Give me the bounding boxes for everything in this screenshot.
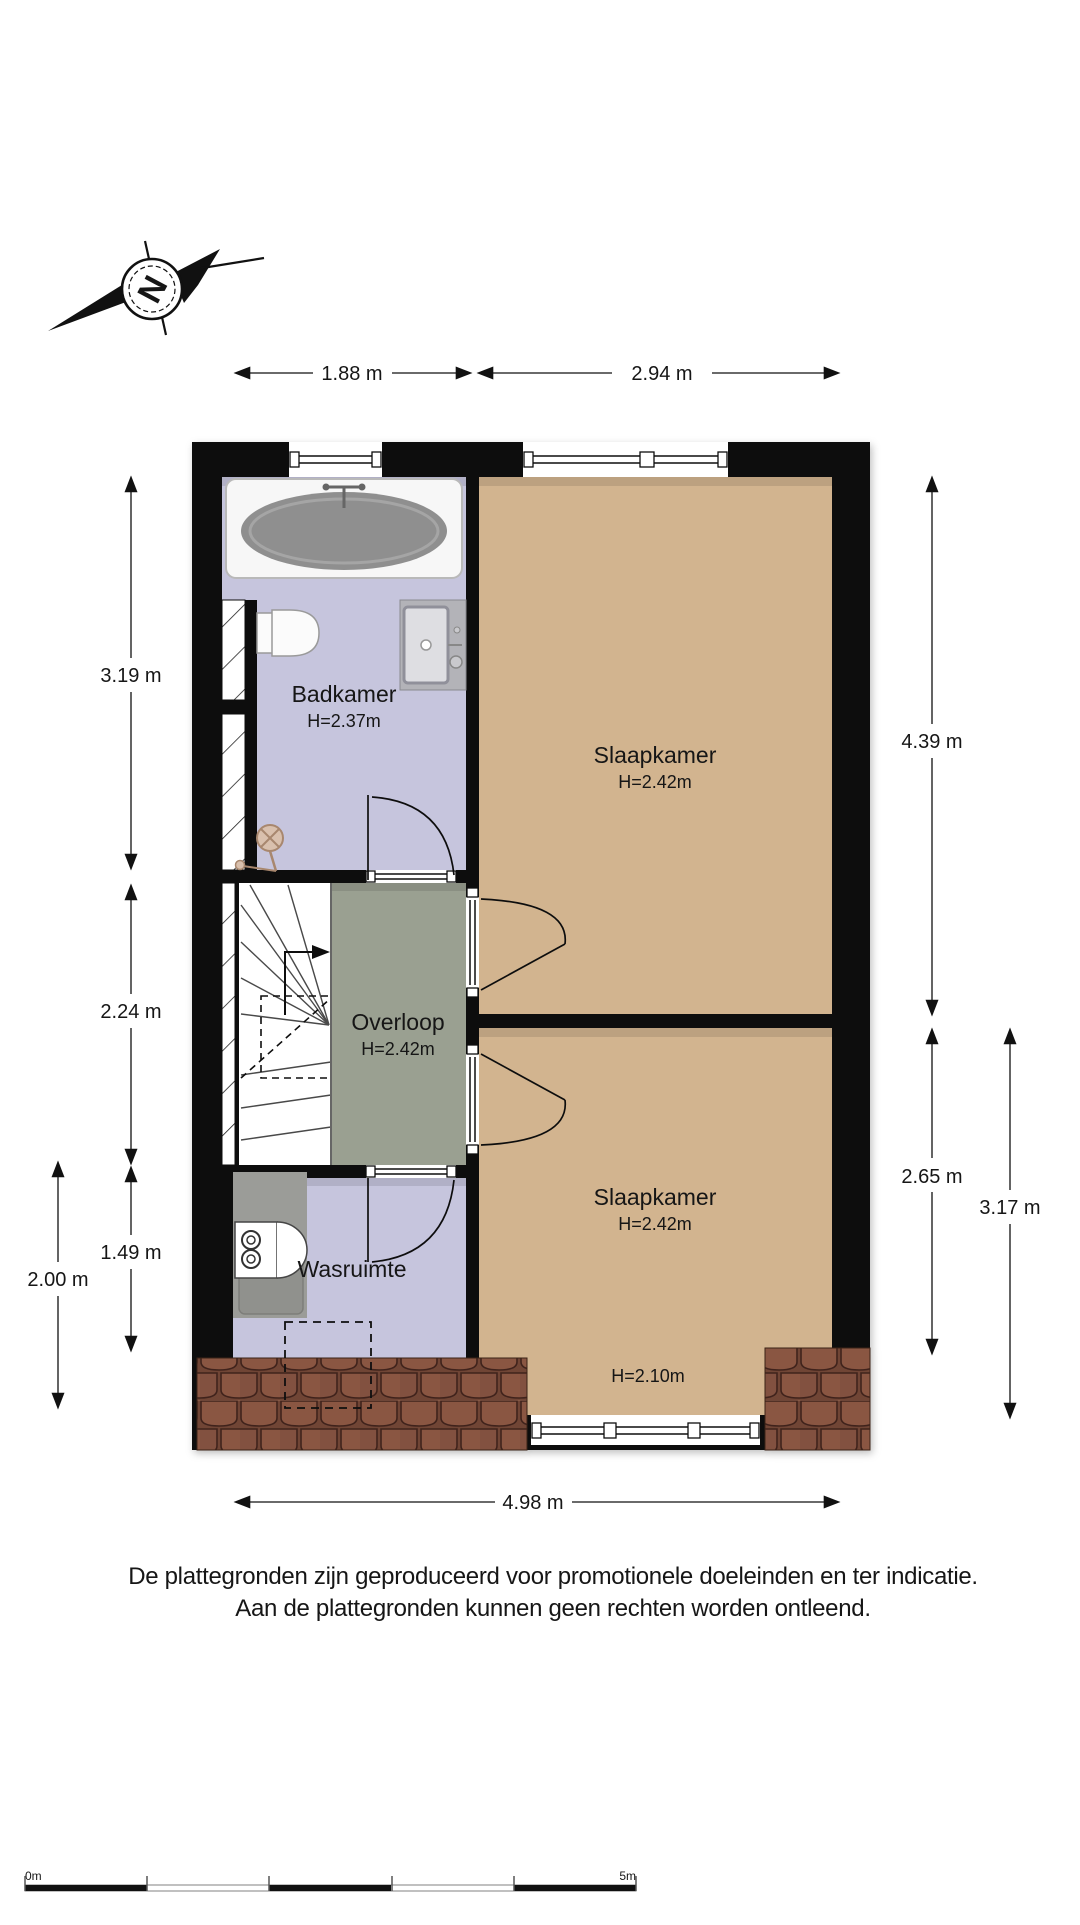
window-slaapkamer-onder [531,1415,760,1445]
room-overloop-label: Overloop [351,1009,444,1035]
window-badkamer [289,442,382,477]
room-slaapkamer-onder-height-low: H=2.10m [611,1366,685,1386]
svg-text:1.88 m: 1.88 m [321,363,382,385]
kneewall-inner-wall-lower [245,714,257,870]
kneewall-hatch-upper [222,600,245,700]
room-badkamer-label: Badkamer [292,681,397,707]
room-overloop-height: H=2.42m [361,1039,435,1059]
disclaimer-line-1: De plattegronden zijn geproduceerd voor … [128,1563,978,1590]
dimension-top-right: 2.94 m [479,363,838,385]
dimension-right-outer: 3.17 m [979,1030,1040,1417]
room-badkamer-height: H=2.37m [307,711,381,731]
svg-text:4.39 m: 4.39 m [901,731,962,753]
svg-text:2.94 m: 2.94 m [631,363,692,385]
scale-bar-end: 5m [619,1869,636,1883]
dimension-left-outer: 2.00 m [27,1163,88,1407]
room-slaapkamer-boven-height: H=2.42m [618,772,692,792]
boiler-icon [235,1222,307,1278]
dimension-bottom: 4.98 m [236,1492,838,1514]
scale-bar: 0m 5m [25,1869,636,1891]
scale-bar-start: 0m [25,1869,42,1883]
roof-left [197,1358,527,1450]
dimension-right-slaapkamer-onder: 2.65 m [901,1030,962,1353]
svg-text:2.65 m: 2.65 m [901,1166,962,1188]
dimension-top-left: 1.88 m [236,363,470,385]
svg-text:1.49 m: 1.49 m [100,1242,161,1264]
bathtub-icon [226,479,462,578]
sink-icon [400,600,466,690]
room-slaapkamer-onder-height: H=2.42m [618,1214,692,1234]
svg-text:2.00 m: 2.00 m [27,1269,88,1291]
svg-text:3.19 m: 3.19 m [100,665,161,687]
window-slaapkamer-boven [523,442,728,477]
room-wasruimte-label: Wasruimte [297,1256,406,1282]
compass-icon: N [48,241,264,335]
svg-text:3.17 m: 3.17 m [979,1197,1040,1219]
dimension-right-slaapkamer-boven: 4.39 m [901,478,962,1014]
toilet-icon [257,610,319,656]
floor-plan: Badkamer H=2.37m Slaapkamer H=2.42m Over… [192,442,870,1450]
room-slaapkamer-boven-label: Slaapkamer [594,742,717,768]
svg-text:4.98 m: 4.98 m [502,1492,563,1514]
kneewall-hatch-lower [222,714,245,870]
kneewall-hatch-stairs [222,883,235,1165]
disclaimer-line-2: Aan de plattegronden kunnen geen rechten… [235,1595,870,1622]
kneewall-inner-wall-upper [245,600,257,700]
floorplan-canvas: N [0,0,1080,1920]
roof-right [765,1348,870,1450]
svg-text:2.24 m: 2.24 m [100,1001,161,1023]
dimension-left-wasruimte: 1.49 m [100,1168,161,1350]
room-slaapkamer-onder-label: Slaapkamer [594,1184,717,1210]
dimension-left-overloop: 2.24 m [100,886,161,1163]
dimension-left-badkamer: 3.19 m [100,478,161,868]
